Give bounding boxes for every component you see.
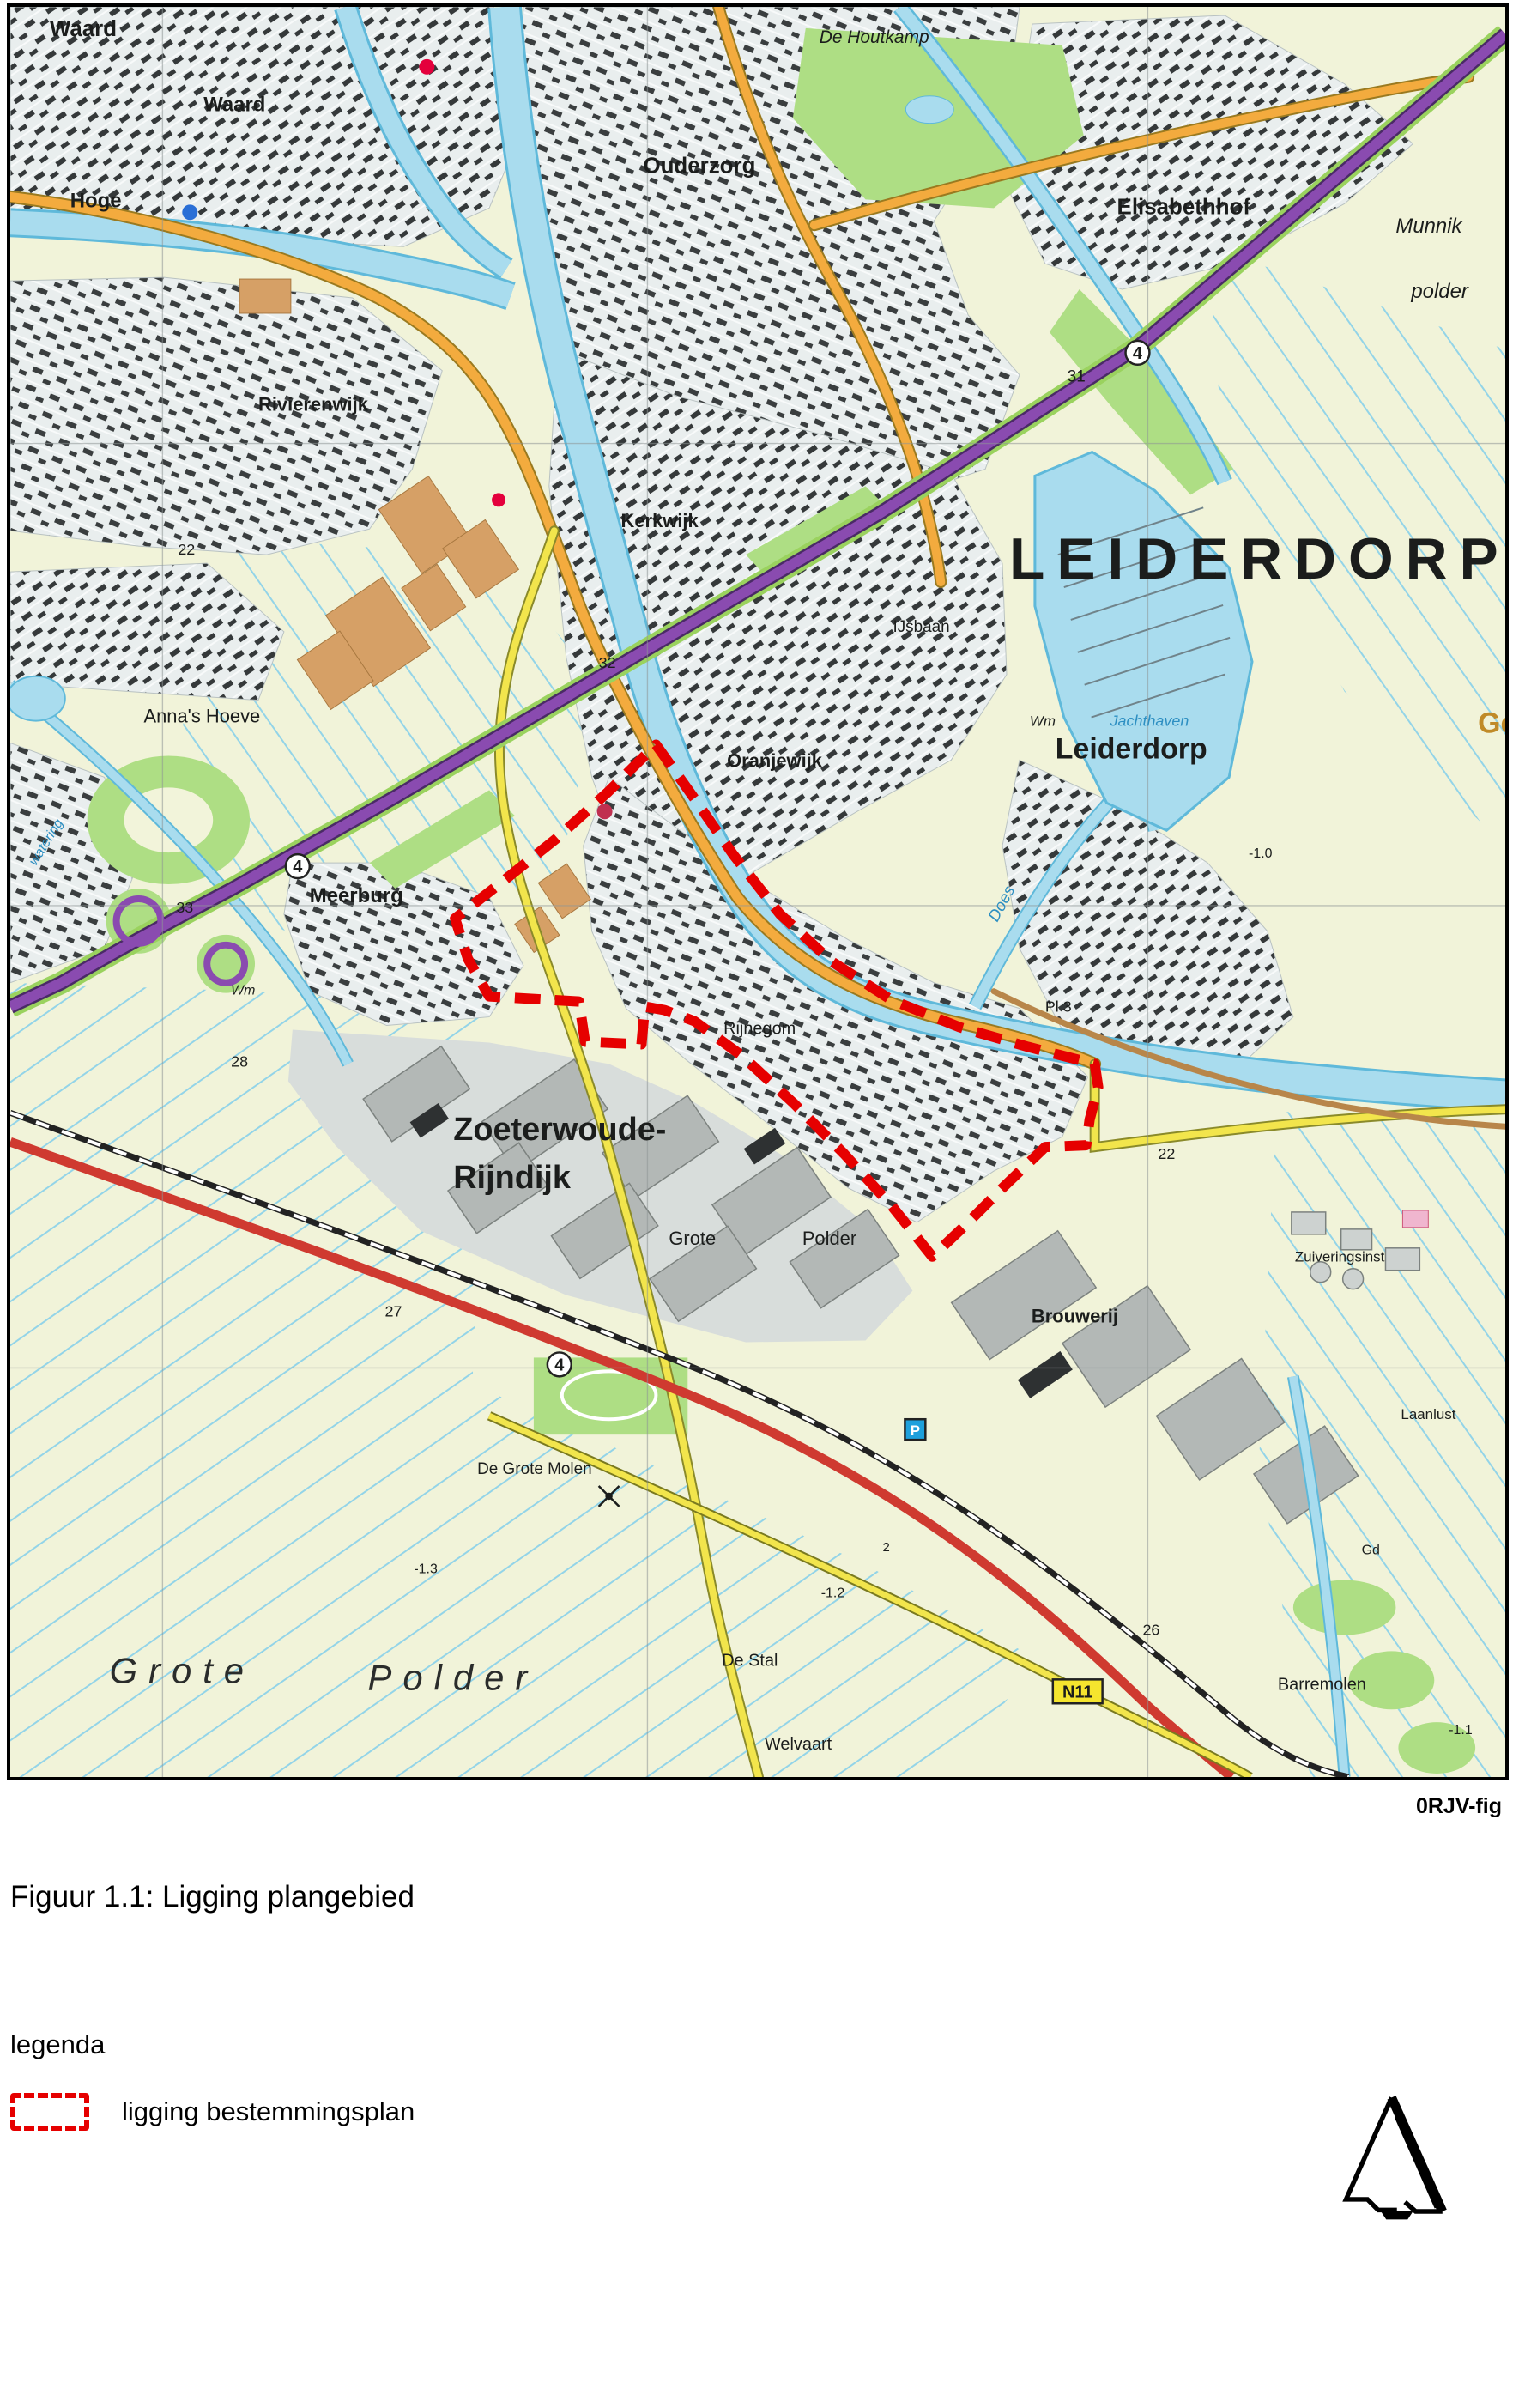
map-label: Jachthaven [1110,713,1189,730]
map-label: -1.0 [1249,846,1273,861]
map-label: -1.3 [414,1562,438,1577]
map-label: Rivierenwijk [258,394,369,415]
road-shield: 4 [1126,341,1150,365]
map-label: 22 [1158,1145,1175,1162]
map-label: 26 [1142,1621,1159,1638]
map-label: Munnik [1395,215,1462,238]
map-label: Grote [110,1650,255,1690]
map-label: Oranjewijk [727,749,823,771]
topographic-map: WaardWaardHogeDe HoutkampOuderzorgElisab… [7,3,1509,1780]
road-shield: 4 [286,854,310,878]
map-label: IJsbaan [893,618,949,636]
legend: legenda ligging bestemmingsplan [10,2029,415,2131]
map-label: Gd [1362,1544,1380,1558]
plan-boundary-symbol [10,2093,89,2131]
map-label: Ouderzorg [643,154,755,178]
map-label: Zoeterwoude- [453,1112,666,1148]
map-label: Pl 3 [1045,998,1072,1016]
map-label: De Houtkamp [820,27,929,47]
map-label: 28 [231,1052,248,1070]
map-label: Welvaart [765,1735,832,1754]
red-dot-marker [492,493,505,506]
map-label: 33 [176,899,193,916]
map-label: Brouwerij [1032,1306,1118,1327]
map-label: 27 [384,1303,402,1320]
figure-page: WaardWaardHogeDe HoutkampOuderzorgElisab… [0,0,1525,2408]
blue-dot-marker [182,204,197,220]
map-source-code: 0RJV-fig [1287,1794,1502,1819]
svg-text:P: P [911,1422,920,1439]
road-shield: 4 [548,1352,572,1376]
map-label: Zuiveringsinst [1295,1249,1385,1265]
map-label: -1.1 [1449,1723,1473,1738]
map-label: De Stal [722,1651,778,1670]
map-label: 2 [882,1540,889,1555]
map-label: Grote [669,1228,716,1249]
map-label: LEIDERDORP [1009,527,1505,591]
svg-text:4: 4 [554,1356,564,1374]
legend-item-label: ligging bestemmingsplan [122,2096,415,2127]
map-label: Rijnegom [723,1020,796,1039]
map-label: 32 [599,654,616,671]
svg-text:N11: N11 [1062,1683,1092,1701]
map-label: Kerkwijk [621,510,699,531]
svg-text:4: 4 [1133,344,1142,363]
legend-item: ligging bestemmingsplan [10,2093,415,2131]
map-label: Hoge [70,189,122,212]
map-label: Wm [231,984,255,998]
map-label: De Grote Molen [477,1460,592,1478]
map-label: Polder [368,1657,539,1697]
pink-facility-marker [1402,1210,1428,1228]
figure-caption: Figuur 1.1: Ligging plangebied [10,1880,415,1914]
map-label: Waard [203,94,265,117]
map-label: 31 [1068,368,1086,386]
road-shield-n11: N11 [1053,1679,1103,1703]
map-label: Ge [1478,707,1505,740]
map-canvas: WaardWaardHogeDe HoutkampOuderzorgElisab… [10,7,1505,1777]
red-dot-marker [597,804,613,819]
map-label: Elisabethhof [1117,195,1251,219]
parking-symbol: P [905,1419,925,1440]
map-label: Polder [802,1228,856,1249]
map-label: polder [1410,280,1468,303]
map-label: Rijndijk [453,1160,572,1196]
map-label: Barremolen [1278,1675,1366,1694]
map-label: Anna's Hoeve [143,706,260,727]
map-label: Waard [50,17,117,41]
red-dot-marker [419,59,434,75]
map-label: Laanlust [1401,1406,1455,1422]
legend-title: legenda [10,2029,415,2060]
map-label: Meerburg [310,884,403,907]
map-label: Leiderdorp [1056,732,1207,765]
map-label: Wm [1030,713,1056,730]
company-logo [1335,2090,1469,2223]
map-label: 22 [178,541,195,558]
svg-text:4: 4 [293,858,302,876]
map-label: -1.2 [821,1586,845,1601]
